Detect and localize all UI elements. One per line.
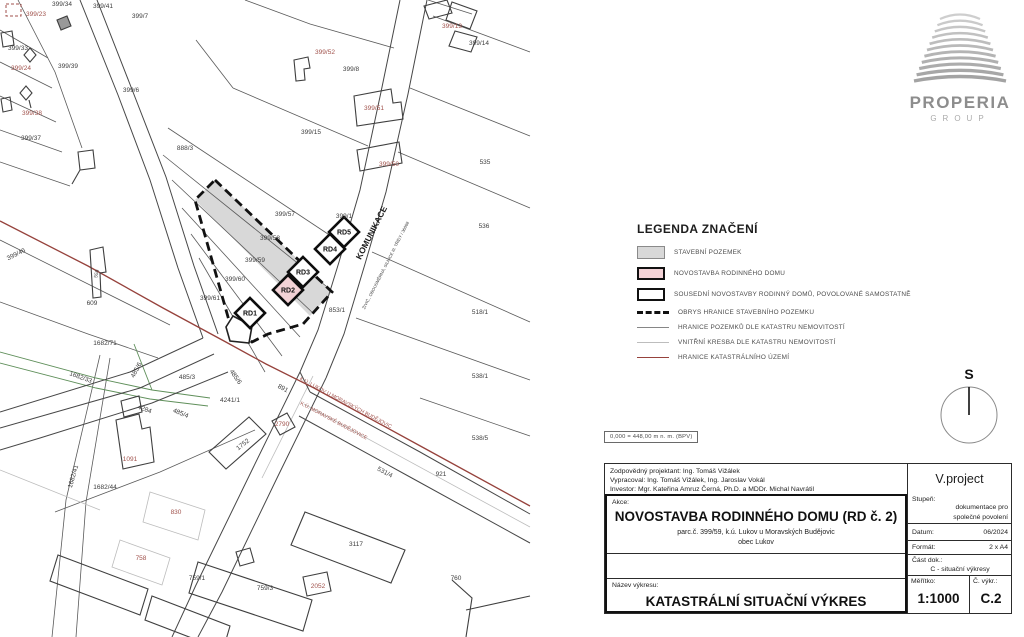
map-label: 531/4 — [376, 466, 394, 480]
map-label: 485/6 — [130, 361, 144, 379]
map-label: 485/4 — [172, 407, 190, 420]
akce-label: Akce: — [612, 499, 629, 506]
legend-item: STAVEBNÍ POZEMEK — [637, 246, 967, 259]
map-label: 399/51 — [364, 105, 384, 112]
map-label: 399/57 — [275, 211, 295, 218]
drawing-name: KATASTRÁLNÍ SITUAČNÍ VÝKRES — [607, 594, 905, 609]
project-parcel: parc.č. 399/59, k.ú. Lukov u Moravských … — [607, 529, 905, 536]
legend-label: STAVEBNÍ POZEMEK — [674, 249, 742, 256]
scale-value: 1:1000 — [911, 591, 966, 606]
map-label: 399/60 — [225, 276, 245, 283]
map-label: 399/37 — [21, 135, 41, 142]
rd-label: RD1 — [243, 311, 257, 318]
legend-label: NOVOSTAVBA RODINNÉHO DOMU — [674, 270, 785, 277]
map-label: 1682/33 — [68, 370, 93, 385]
red-marked-building — [6, 4, 21, 16]
map-label: 399/58 — [260, 235, 280, 242]
logo-arc — [930, 39, 991, 44]
map-label: 760 — [451, 575, 462, 582]
inner-drawing-layer — [0, 376, 530, 585]
rd-label: RD5 — [337, 230, 351, 237]
logo-arc — [937, 21, 982, 26]
drawing-name-label: Název výkresu: — [612, 582, 658, 589]
map-label: 891 — [276, 383, 289, 394]
map-label: 399/33 — [8, 45, 28, 52]
logo-arc — [917, 70, 1004, 75]
logo-arc — [914, 77, 1006, 82]
map-label: 1682/71 — [93, 340, 117, 347]
meta-column: Stupeň: dokumentace pro společné povolen… — [907, 494, 1011, 613]
map-label: 399/6 — [123, 87, 140, 94]
map-label: 1752 — [235, 437, 251, 452]
map-label: 536 — [479, 223, 490, 230]
map-label: 399/15 — [301, 129, 321, 136]
stage-row: Stupeň: dokumentace pro společné povolen… — [908, 494, 1012, 524]
map-label: 399/52 — [315, 49, 335, 56]
divider — [607, 578, 905, 579]
scale-label: Měřítko: — [911, 578, 936, 585]
map-label: 399/39 — [58, 63, 78, 70]
project-people: Zodpovědný projektant: Ing. Tomáš Vižále… — [605, 464, 907, 494]
map-label: 399/61 — [200, 295, 220, 302]
map-label: 921 — [436, 471, 447, 478]
map-label: 535 — [480, 159, 491, 166]
format-label: Formát: — [912, 544, 935, 551]
action-cell: Akce: NOVOSTAVBA RODINNÉHO DOMU (RD č. 2… — [605, 494, 907, 613]
doc-part-value: C - situační výkresy — [912, 566, 1008, 573]
legend-symbol-swatch-pink — [637, 267, 665, 280]
north-letter: S — [964, 366, 973, 382]
parcel-boundaries-layer — [0, 0, 530, 637]
legend-symbol-line-dashed — [637, 311, 669, 314]
properia-logo-icon — [900, 8, 1020, 86]
legend-label: OBRYS HRANICE STAVEBNÍHO POZEMKU — [678, 309, 814, 316]
logo-name: PROPERIA — [898, 93, 1022, 113]
map-label: 1091 — [123, 456, 138, 463]
stage-label: Stupeň: — [912, 496, 935, 503]
map-label: 518/1 — [472, 309, 489, 316]
legend-title: LEGENDA ZNAČENÍ — [637, 222, 967, 236]
map-label: 888/3 — [177, 145, 194, 152]
author: Vypracoval: Ing. Tomáš Vižálek, Ing. Jar… — [610, 476, 902, 485]
logo-arc — [924, 52, 995, 57]
legend-item: HRANICE KATASTRÁLNÍHO ÚZEMÍ — [637, 354, 967, 361]
map-label: 399/34 — [52, 1, 72, 8]
company-name: V.project — [907, 464, 1011, 494]
project-municipality: obec Lukov — [607, 539, 905, 546]
date-label: Datum: — [912, 529, 934, 536]
legend-item: VNITŘNÍ KRESBA DLE KATASTRU NEMOVITOSTÍ — [637, 339, 967, 346]
map-label: 485/3 — [179, 374, 196, 381]
map-label: 538/5 — [472, 435, 489, 442]
rd-label: RD4 — [323, 247, 337, 254]
map-label: 538/1 — [472, 373, 489, 380]
map-label: 399/24 — [11, 65, 31, 72]
legend-label: HRANICE POZEMKŮ DLE KATASTRU NEMOVITOSTÍ — [678, 324, 845, 331]
map-label: 399/13 — [442, 23, 462, 30]
logo-arc — [927, 46, 993, 51]
drawing-number-value: C.2 — [973, 591, 1009, 606]
map-label: 399/23 — [26, 11, 46, 18]
logo-arc — [932, 33, 988, 38]
legend-item: NOVOSTAVBA RODINNÉHO DOMU — [637, 267, 967, 280]
project-title: NOVOSTAVBA RODINNÉHO DOMU (RD č. 2) — [607, 509, 905, 524]
logo-arc — [922, 58, 998, 63]
map-label: 399/59 — [245, 257, 265, 264]
map-label: 485/6 — [228, 368, 243, 386]
map-label: 3117 — [349, 541, 363, 548]
map-label: 759/3 — [257, 585, 274, 592]
logo-arc — [935, 27, 985, 32]
divider — [607, 553, 905, 554]
map-label: 1682/41 — [67, 464, 80, 489]
map-label: 399/14 — [469, 40, 489, 47]
map-label: 2790 — [275, 421, 290, 428]
doc-part-label: Část dok.: — [912, 557, 943, 564]
legend-item: OBRYS HRANICE STAVEBNÍHO POZEMKU — [637, 309, 967, 316]
format-row: Formát: 2 x A4 — [908, 541, 1012, 555]
stage-value-2: společné povolení — [912, 514, 1008, 523]
legend-symbol-swatch-outline — [637, 288, 665, 301]
logo-arc — [940, 15, 980, 20]
legend-symbol-swatch-gray — [637, 246, 665, 259]
map-label: 758 — [136, 555, 147, 562]
buildings-layer — [1, 0, 530, 637]
legend-symbol-line-light — [637, 342, 669, 343]
scale-cell: Měřítko: 1:1000 — [908, 576, 969, 613]
map-label: 399/7 — [132, 13, 149, 20]
legend-item: HRANICE POZEMKŮ DLE KATASTRU NEMOVITOSTÍ — [637, 324, 967, 331]
legend: LEGENDA ZNAČENÍ STAVEBNÍ POZEMEKNOVOSTAV… — [637, 222, 967, 369]
properia-logo: PROPERIA GROUP — [898, 8, 1022, 123]
map-label: 1682/44 — [93, 484, 117, 491]
title-block: Zodpovědný projektant: Ing. Tomáš Vižále… — [604, 463, 1012, 614]
date-value: 06/2024 — [983, 529, 1008, 536]
map-label: 399/41 — [93, 3, 113, 10]
map-label: K.Ú. LUKOV U MORAVSKÝCH BUDĚJOVIC — [298, 374, 393, 430]
logo-group: GROUP — [898, 114, 1022, 123]
map-label: 399/8 — [343, 66, 360, 73]
map-label: 759/1 — [189, 575, 206, 582]
format-value: 2 x A4 — [989, 544, 1008, 551]
map-label: 2052 — [311, 583, 326, 590]
legend-symbol-line-thin — [637, 327, 669, 328]
north-arrow: S — [936, 366, 1006, 457]
map-label: 853/1 — [329, 307, 346, 314]
drawing-number-label: Č. výkr.: — [973, 578, 998, 585]
drawing-number-cell: Č. výkr.: C.2 — [969, 576, 1012, 613]
map-label: 399/38 — [22, 110, 42, 117]
elevation-note: 0,000 = 448,00 m n. m. (BPV) — [604, 431, 698, 443]
legend-label: HRANICE KATASTRÁLNÍHO ÚZEMÍ — [678, 354, 789, 361]
map-label: 399/50 — [379, 161, 399, 168]
doc-part-row: Část dok.: C - situační výkresy — [908, 555, 1012, 576]
legend-symbol-line-red — [637, 357, 669, 358]
map-label: 399/1 — [336, 213, 353, 220]
legend-label: VNITŘNÍ KRESBA DLE KATASTRU NEMOVITOSTÍ — [678, 339, 835, 346]
map-label: 609 — [87, 300, 98, 307]
rd-label: RD2 — [281, 288, 295, 295]
rd-label: RD3 — [296, 270, 310, 277]
logo-arc — [919, 64, 1001, 69]
stage-value-1: dokumentace pro — [912, 504, 1008, 513]
responsible-designer: Zodpovědný projektant: Ing. Tomáš Vižále… — [610, 467, 902, 476]
roads-layer — [0, 0, 530, 637]
map-label: 830 — [171, 509, 182, 516]
legend-item: SOUSEDNÍ NOVOSTAVBY RODINNÝ DOMŮ, POVOLO… — [637, 288, 967, 301]
cadastral-map: RD1RD2RD3RD4RD5 399/34399/23399/41399/73… — [0, 0, 560, 637]
map-label: 399/46 — [6, 247, 27, 262]
map-label: 4241/1 — [220, 397, 240, 404]
cadastral-drawing-page: RD1RD2RD3RD4RD5 399/34399/23399/41399/73… — [0, 0, 1024, 637]
legend-label: SOUSEDNÍ NOVOSTAVBY RODINNÝ DOMŮ, POVOLO… — [674, 291, 911, 298]
legend-items: STAVEBNÍ POZEMEKNOVOSTAVBA RODINNÉHO DOM… — [637, 246, 967, 361]
date-row: Datum: 06/2024 — [908, 524, 1012, 541]
scale-number-row: Měřítko: 1:1000 Č. výkr.: C.2 — [908, 576, 1012, 613]
